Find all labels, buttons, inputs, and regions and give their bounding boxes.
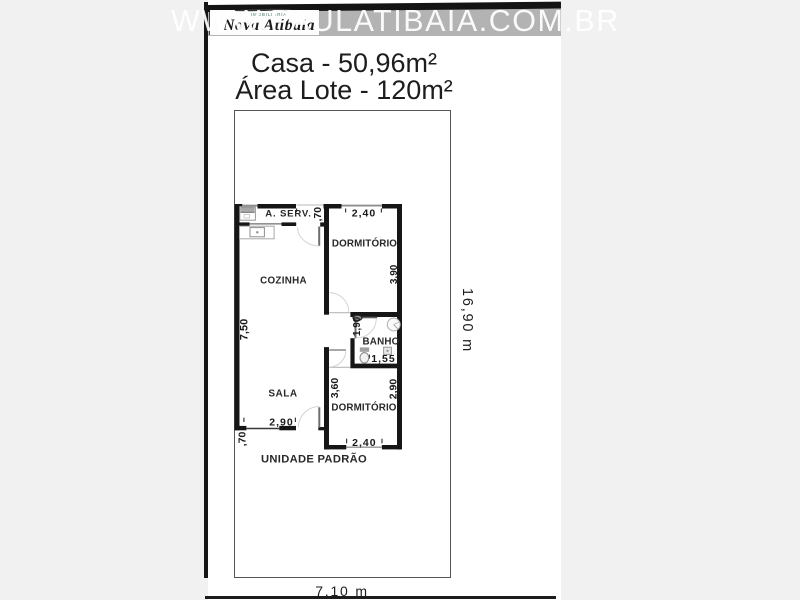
svg-text:BANHO: BANHO [363,337,400,348]
svg-text:2,90: 2,90 [387,379,399,400]
svg-text:2,90: 2,90 [269,416,293,428]
svg-text:A. SERV.: A. SERV. [265,209,311,220]
svg-text:2,40: 2,40 [352,208,376,220]
svg-text:1,55: 1,55 [371,353,395,365]
svg-text:DORMITÓRIO: DORMITÓRIO [331,402,396,414]
svg-text:COZINHA: COZINHA [260,276,307,287]
svg-text:,70: ,70 [312,207,324,222]
svg-text:2,40: 2,40 [352,437,376,449]
svg-text:,70: ,70 [236,432,248,447]
svg-text:3,60: 3,60 [329,378,341,399]
svg-text:UNIDADE PADRÃO: UNIDADE PADRÃO [261,453,367,466]
svg-text:7,50: 7,50 [238,319,250,340]
svg-text:1,90: 1,90 [352,316,363,336]
svg-text:3,90: 3,90 [389,264,400,284]
svg-text:DORMITÓRIO: DORMITÓRIO [332,238,397,250]
svg-text:SALA: SALA [268,389,297,400]
